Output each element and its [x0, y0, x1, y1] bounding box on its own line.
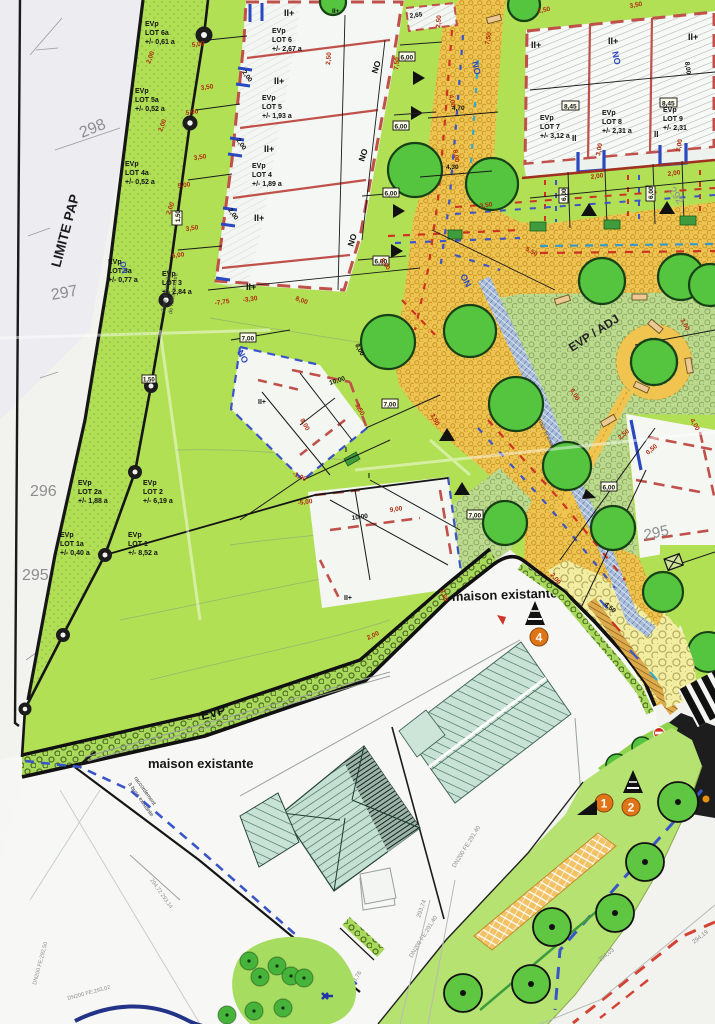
svg-text:LOT 5: LOT 5 — [262, 104, 282, 111]
svg-text:LOT 6a: LOT 6a — [145, 30, 169, 37]
svg-text:I: I — [345, 447, 347, 454]
svg-text:6,00: 6,00 — [603, 485, 616, 492]
svg-text:EVp: EVp — [143, 480, 157, 487]
svg-text:LOT 4a: LOT 4a — [125, 170, 149, 177]
svg-text:II+: II+ — [254, 213, 264, 223]
svg-text:II+: II+ — [264, 144, 274, 154]
svg-text:EVp: EVp — [128, 532, 142, 539]
svg-text:EVp: EVp — [602, 110, 616, 117]
svg-text:+/- 2,31 a: +/- 2,31 a — [602, 128, 632, 135]
svg-text:7,00: 7,00 — [384, 402, 397, 409]
svg-text:II+: II+ — [332, 8, 340, 15]
svg-text:EVp: EVp — [663, 107, 677, 114]
svg-text:II+: II+ — [608, 36, 618, 46]
svg-text:+/- 1,89 a: +/- 1,89 a — [252, 181, 282, 188]
svg-text:1,50: 1,50 — [176, 210, 182, 222]
svg-text:8,45: 8,45 — [564, 104, 577, 111]
svg-text:LOT 7: LOT 7 — [540, 124, 560, 131]
svg-text:I: I — [368, 473, 370, 480]
svg-text:296: 296 — [30, 483, 57, 500]
svg-text:6,00: 6,00 — [648, 186, 655, 199]
svg-text:+/- 1,88 a: +/- 1,88 a — [78, 498, 108, 505]
svg-text:7,00: 7,00 — [242, 336, 255, 343]
svg-text:+/- 2,67 a: +/- 2,67 a — [272, 46, 302, 53]
svg-text:7,00: 7,00 — [469, 513, 482, 520]
svg-text:4: 4 — [536, 631, 543, 645]
svg-text:+/- 0,52 a: +/- 0,52 a — [125, 179, 155, 186]
svg-text:II+: II+ — [284, 8, 294, 18]
svg-text:II+: II+ — [531, 40, 541, 50]
svg-text:6,00: 6,00 — [401, 55, 414, 62]
svg-text:2,50: 2,50 — [325, 52, 333, 66]
svg-text:+/- 8,52 a: +/- 8,52 a — [128, 550, 158, 557]
svg-text:EVp: EVp — [540, 115, 554, 122]
svg-text:6,00: 6,00 — [395, 124, 408, 131]
svg-text:LOT 2a: LOT 2a — [78, 489, 102, 496]
svg-text:EVp: EVp — [125, 161, 139, 168]
svg-text:+/- 3,12 a: +/- 3,12 a — [540, 133, 570, 140]
svg-text:295: 295 — [22, 567, 49, 584]
svg-text:LOT 1a: LOT 1a — [60, 541, 84, 548]
svg-text:8,45: 8,45 — [662, 101, 675, 108]
svg-text:maison existante: maison existante — [148, 756, 254, 771]
svg-text:LOT 2: LOT 2 — [143, 489, 163, 496]
svg-text:LOT 5a: LOT 5a — [135, 97, 159, 104]
svg-text:II+: II+ — [688, 32, 698, 42]
svg-text:4,30: 4,30 — [446, 164, 459, 171]
svg-text:EVp: EVp — [252, 163, 266, 170]
svg-text:+/- 0,52 a: +/- 0,52 a — [135, 106, 165, 113]
svg-text:EVp: EVp — [145, 21, 159, 28]
svg-text:LOT 1: LOT 1 — [128, 541, 148, 548]
svg-text:+/- 2,31: +/- 2,31 — [663, 125, 687, 132]
svg-text:1: 1 — [601, 797, 608, 811]
svg-text:1,50: 1,50 — [143, 378, 155, 384]
svg-text:II+: II+ — [246, 282, 256, 292]
svg-text:6,00: 6,00 — [385, 191, 398, 198]
svg-text:LOT 6: LOT 6 — [272, 37, 292, 44]
svg-text:2,50: 2,50 — [435, 15, 443, 29]
svg-text:II+: II+ — [258, 399, 266, 406]
svg-text:+/- 0,40 a: +/- 0,40 a — [60, 550, 90, 557]
svg-text:2: 2 — [628, 801, 635, 815]
svg-text:LOT 8: LOT 8 — [602, 119, 622, 126]
svg-text:+/- 6,19 a: +/- 6,19 a — [143, 498, 173, 505]
svg-text:+/- 0,77 a: +/- 0,77 a — [108, 277, 138, 284]
svg-text:4,70: 4,70 — [452, 105, 465, 112]
svg-text:EVp: EVp — [272, 28, 286, 35]
svg-text:LOT 9: LOT 9 — [663, 116, 683, 123]
svg-text:LOT 4: LOT 4 — [252, 172, 272, 179]
svg-text:II: II — [654, 130, 658, 139]
svg-text:II+: II+ — [344, 595, 352, 602]
svg-text:EVp: EVp — [135, 88, 149, 95]
svg-text:+/- 0,61 a: +/- 0,61 a — [145, 39, 175, 46]
svg-text:II+: II+ — [274, 76, 284, 86]
svg-text:EVp: EVp — [78, 480, 92, 487]
svg-text:II: II — [572, 134, 576, 143]
svg-text:EVp: EVp — [60, 532, 74, 539]
svg-text:7,50: 7,50 — [393, 57, 401, 71]
svg-text:+/- 1,93 a: +/- 1,93 a — [262, 113, 292, 120]
svg-text:EVp: EVp — [262, 95, 276, 102]
